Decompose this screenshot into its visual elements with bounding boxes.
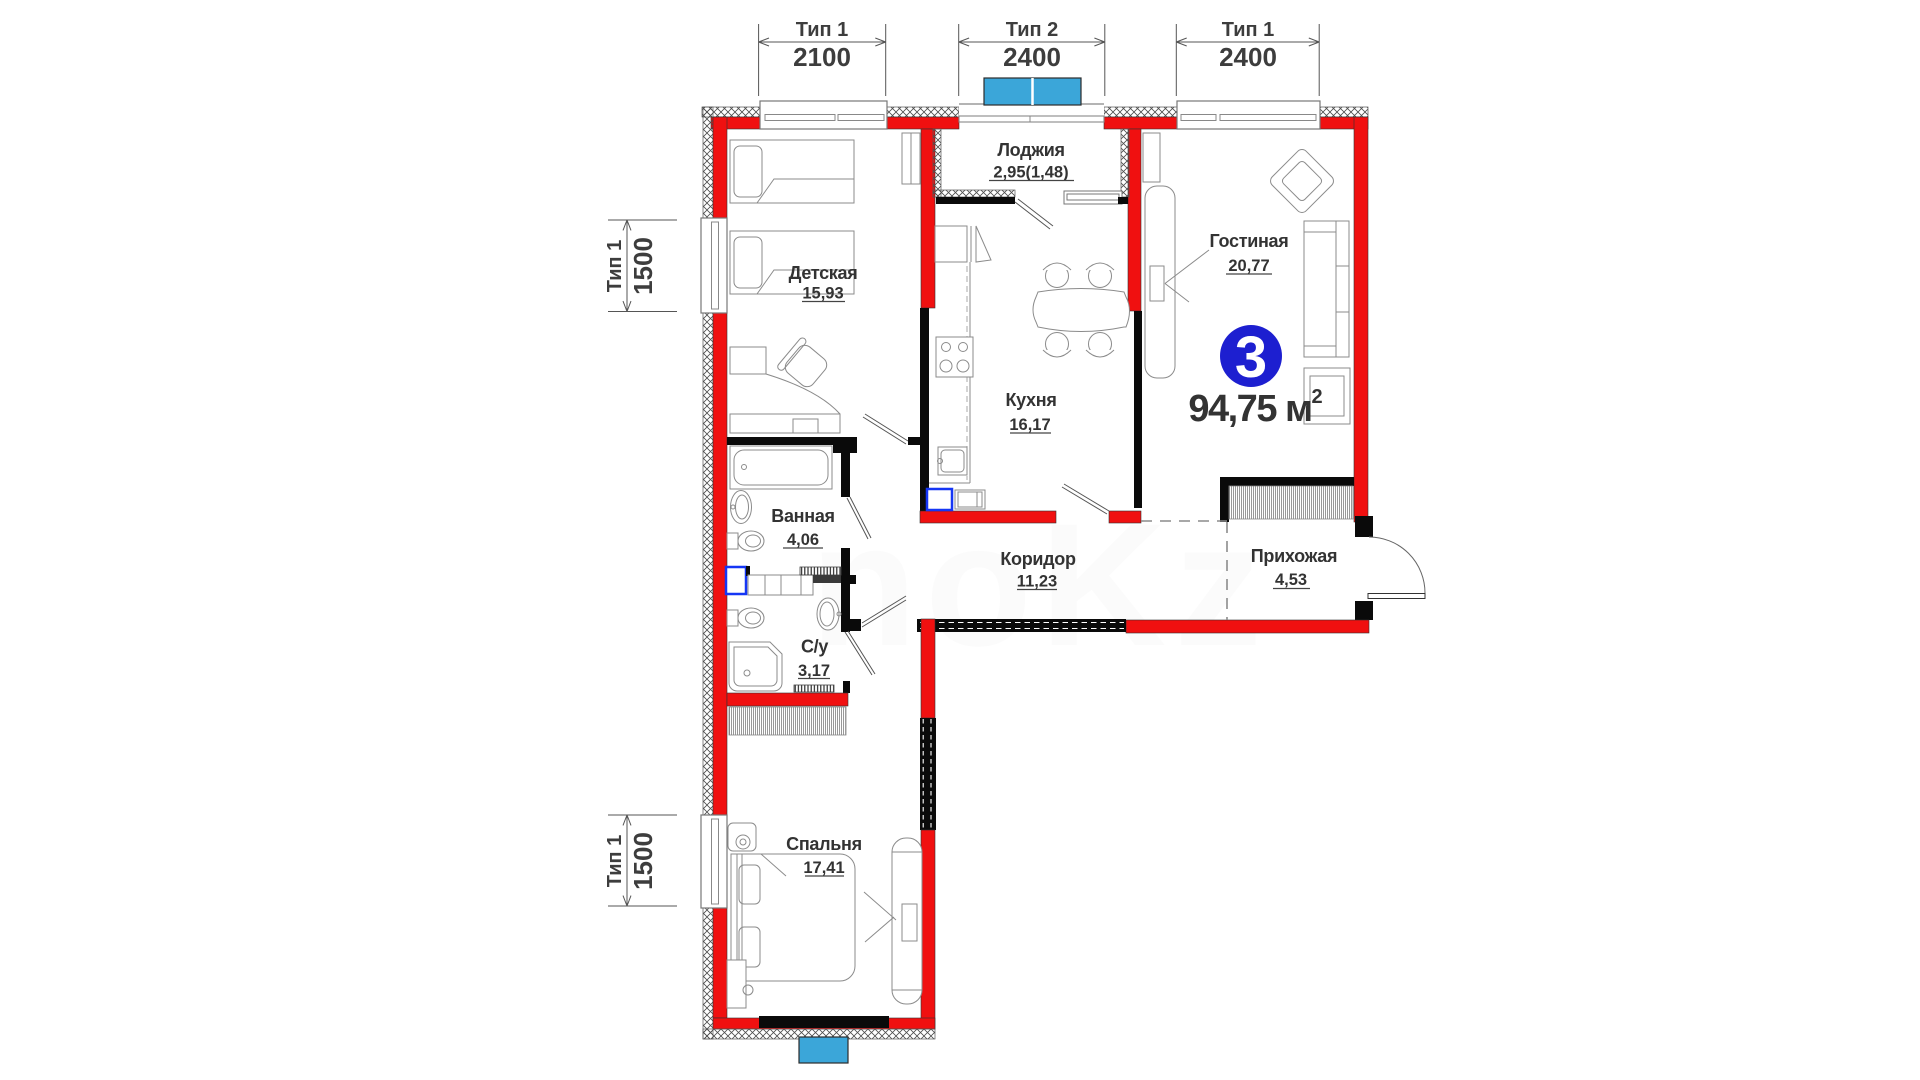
svg-text:17,41: 17,41 [803,859,844,877]
svg-text:Гостиная: Гостиная [1210,231,1289,251]
svg-text:С/у: С/у [801,637,828,657]
svg-text:1500: 1500 [628,237,658,295]
svg-text:1500: 1500 [628,832,658,890]
svg-text:Лоджия: Лоджия [997,140,1064,160]
svg-text:20,77: 20,77 [1228,257,1269,275]
svg-text:Кухня: Кухня [1005,390,1056,410]
svg-text:Тип 1: Тип 1 [1222,19,1275,41]
svg-text:2: 2 [1311,386,1322,408]
svg-text:Прихожая: Прихожая [1251,546,1337,566]
svg-text:Тип 1: Тип 1 [796,19,849,41]
svg-text:4,53: 4,53 [1275,571,1307,589]
svg-text:16,17: 16,17 [1009,416,1050,434]
svg-text:3,17: 3,17 [798,662,830,680]
svg-text:Детская: Детская [789,263,858,283]
svg-text:Тип 1: Тип 1 [604,835,626,888]
svg-text:2,95(1,48): 2,95(1,48) [993,164,1068,182]
svg-text:Тип 1: Тип 1 [604,240,626,293]
svg-text:94,75 м: 94,75 м [1188,388,1311,430]
svg-text:Тип 2: Тип 2 [1006,19,1059,41]
svg-text:2100: 2100 [793,42,851,72]
svg-text:11,23: 11,23 [1017,573,1057,591]
svg-text:2400: 2400 [1219,42,1277,72]
svg-text:4,06: 4,06 [787,531,819,549]
svg-text:3: 3 [1235,325,1267,390]
svg-text:2400: 2400 [1003,42,1061,72]
svg-text:Ванная: Ванная [771,506,834,526]
svg-text:Коридор: Коридор [1000,549,1076,569]
svg-text:15,93: 15,93 [802,285,843,303]
svg-text:Спальня: Спальня [786,834,862,854]
